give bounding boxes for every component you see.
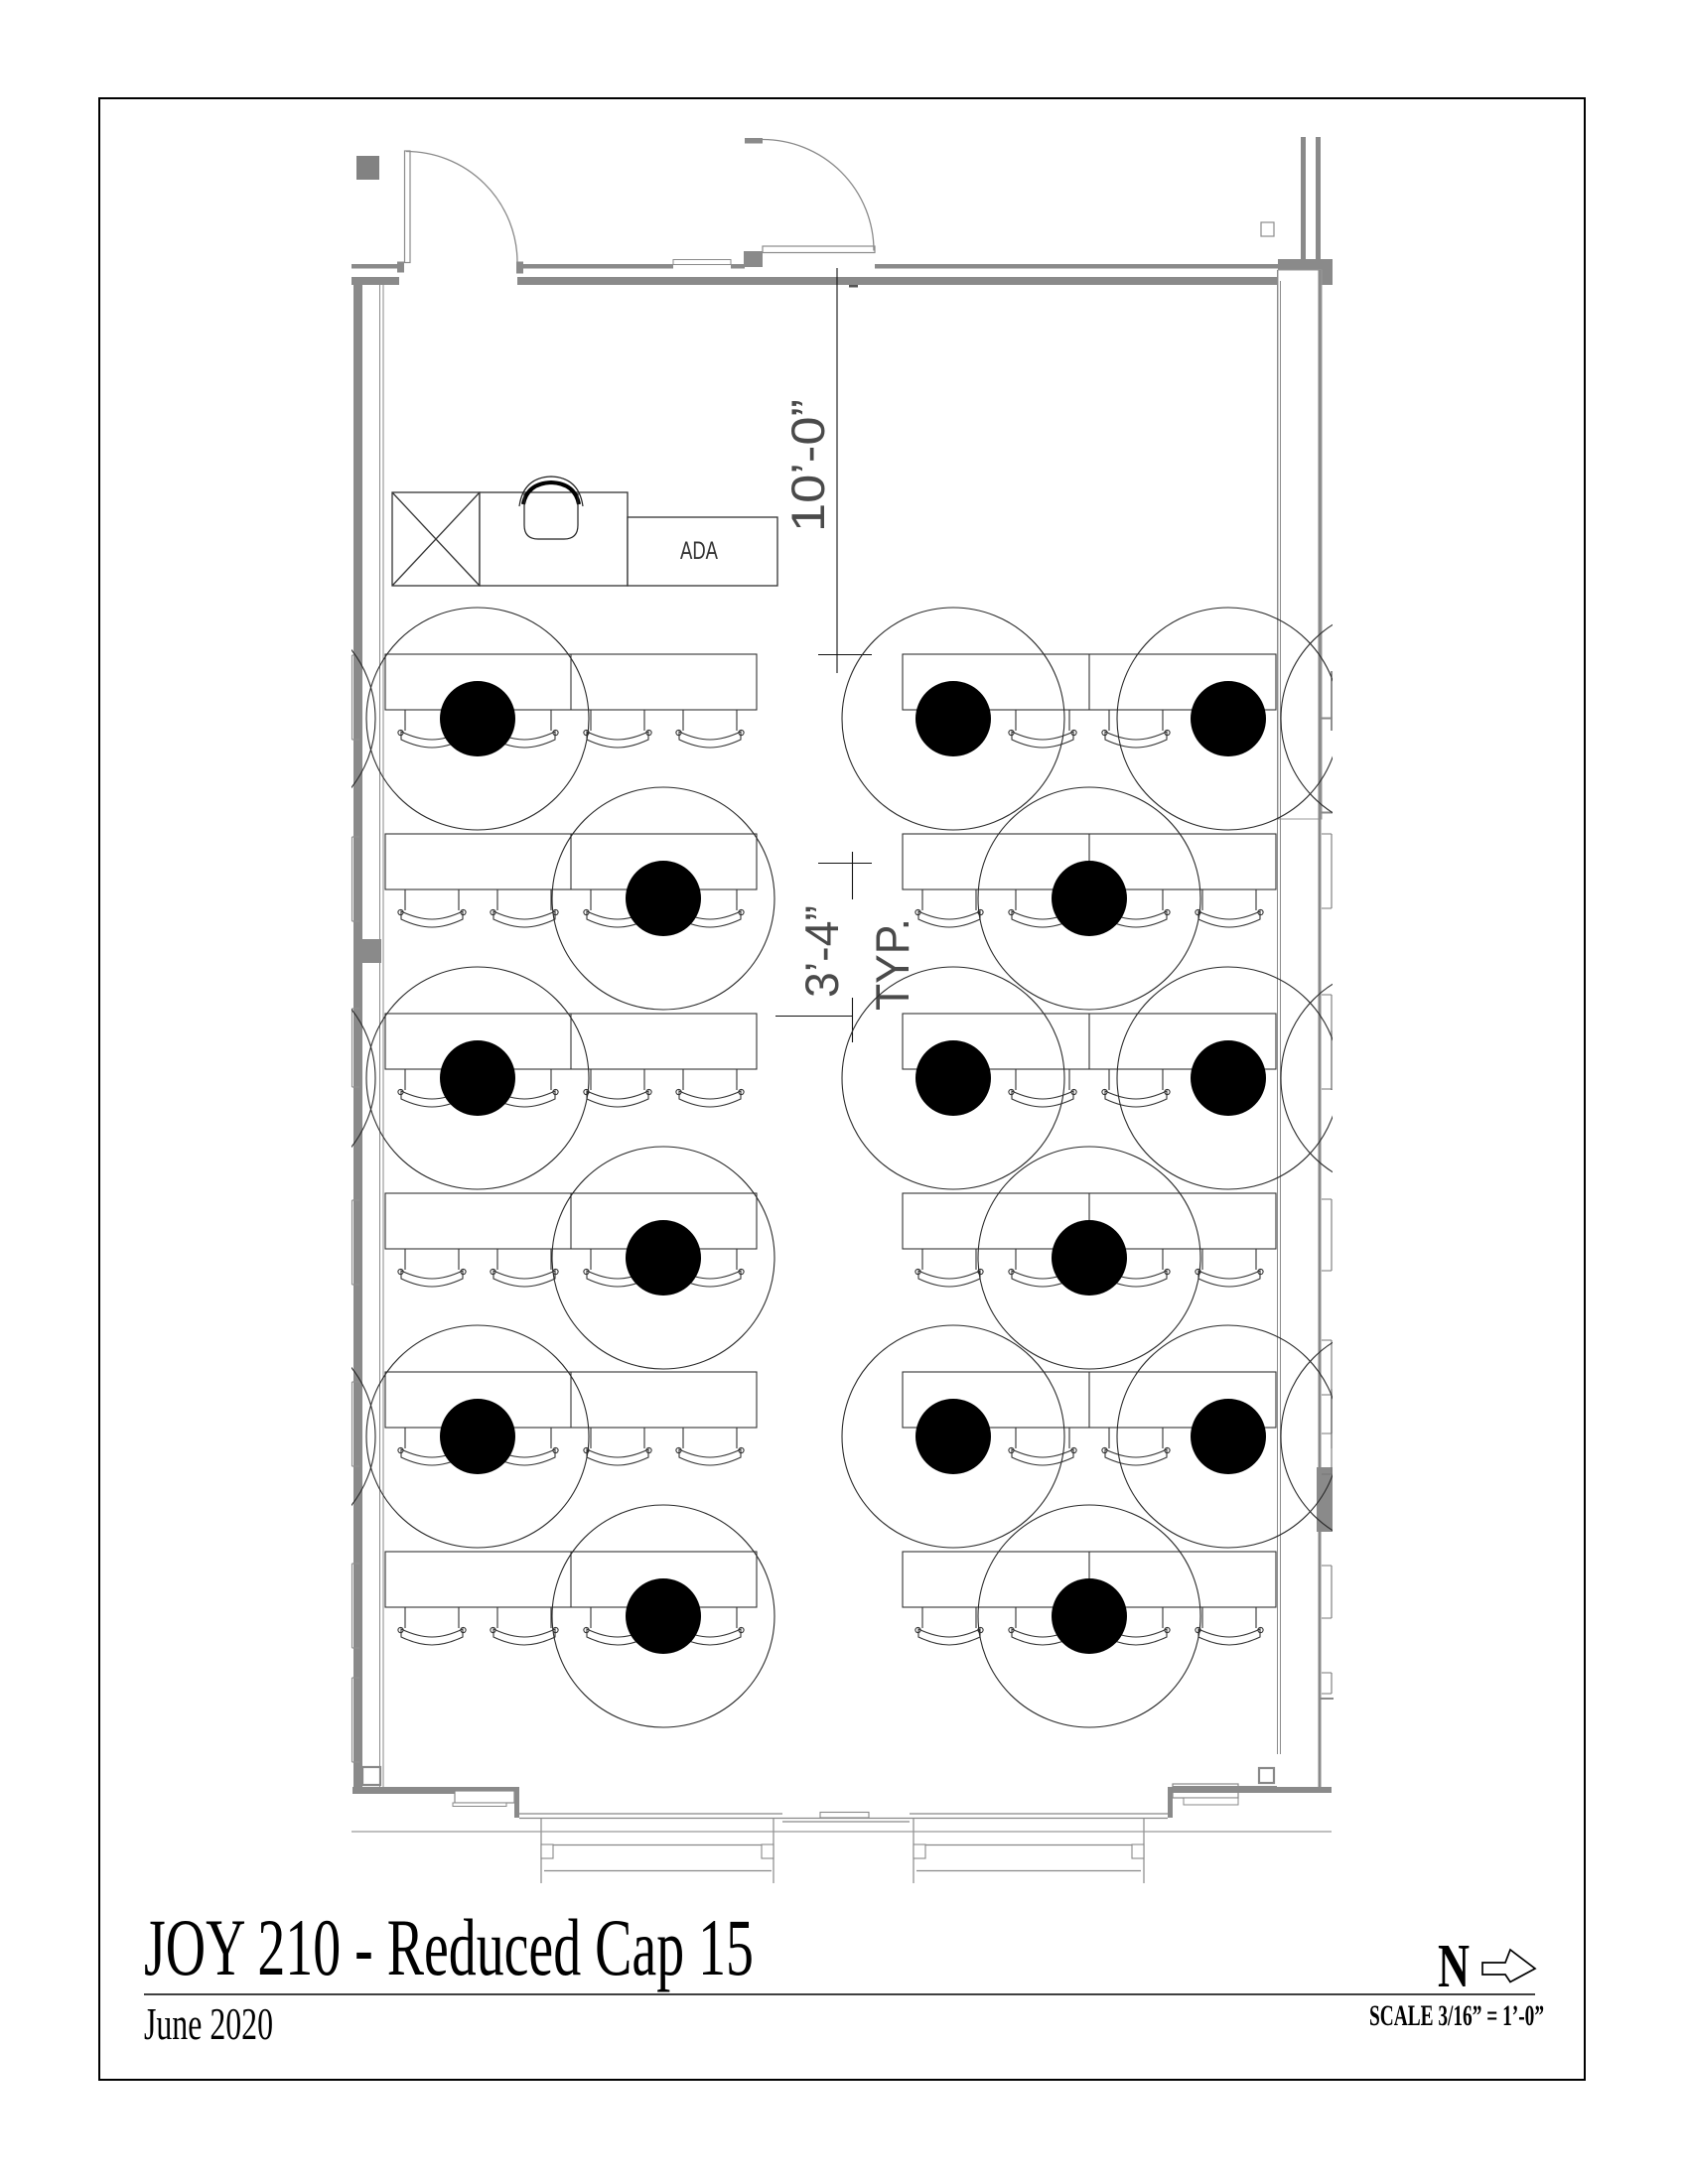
svg-text:June 2020: June 2020 <box>144 1998 273 2049</box>
svg-text:10’-0”: 10’-0” <box>781 399 834 532</box>
svg-text:ADA: ADA <box>680 537 718 565</box>
svg-text:SCALE 3/16” = 1’-0”: SCALE 3/16” = 1’-0” <box>1369 1999 1544 2032</box>
svg-text:3’-4”: 3’-4” <box>795 905 848 998</box>
svg-text:JOY 210 - Reduced Cap 15: JOY 210 - Reduced Cap 15 <box>144 1902 754 1992</box>
svg-text:TYP.: TYP. <box>866 918 918 1011</box>
svg-text:N: N <box>1438 1933 1470 2000</box>
